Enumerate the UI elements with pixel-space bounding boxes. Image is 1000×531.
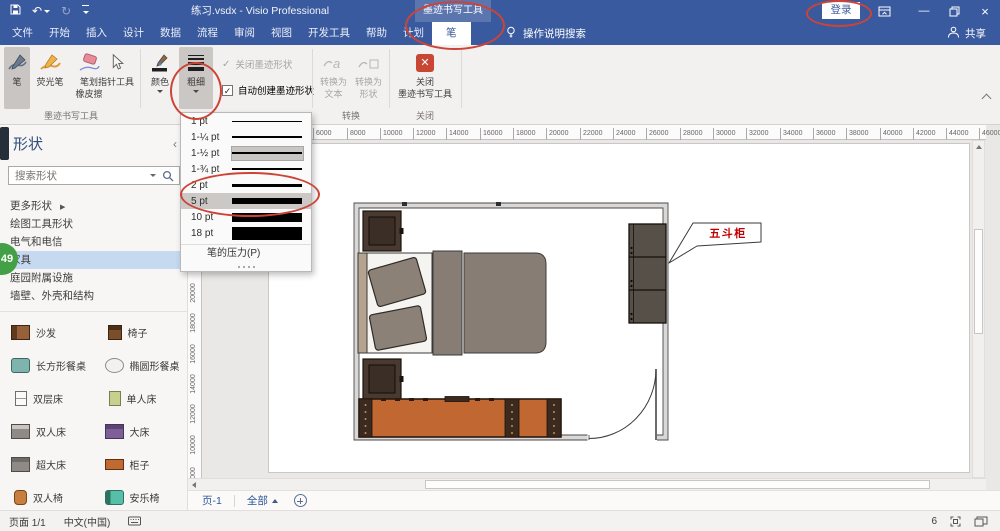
page-count-status[interactable]: 页面 1/1 [9,514,46,529]
ruler-label: 22000 [580,128,602,140]
stencil-section-item[interactable]: 庭园附属设施 [0,269,188,287]
stencil-shape[interactable]: 双人床 [0,424,94,439]
stencil-shape[interactable]: 双层床 [0,391,94,406]
signin-button[interactable]: 登录 [822,2,860,19]
restore-icon[interactable] [942,0,966,22]
page-tab-bar: 页-1 全部 [188,490,1000,510]
stencil-shape[interactable]: 大床 [94,424,188,439]
panel-grip[interactable] [0,127,9,160]
stencil-icon [11,424,30,439]
stencil-section-item[interactable]: 墙壁、外壳和结构 [0,287,188,305]
convert-to-shape-button: 转换为 形状 [352,47,385,109]
ribbon-tab[interactable]: 开始 [41,22,78,45]
pointer-icon [106,51,126,75]
ribbon-tab[interactable]: 流程 [189,22,226,45]
scroll-up-icon[interactable] [976,145,982,149]
highlighter-button[interactable]: 荧光笔 [31,47,69,109]
ruler-label: 6000 [313,128,332,140]
stencil-section-item[interactable]: 绘图工具形状 [0,215,188,233]
menu-resize-grip[interactable] [181,262,311,271]
stencil-shape[interactable]: 安乐椅 [94,490,188,505]
ruler-label: 12000 [413,128,435,140]
zoom-value: 6 [931,516,937,527]
line-weight-sample [232,121,302,122]
tell-me-search[interactable]: 操作说明搜索 [505,22,586,45]
pen-width-option[interactable]: 18 pt [181,225,311,241]
ruler-label: 14000 [190,367,200,401]
search-dropdown-icon[interactable] [150,174,156,180]
color-brush-icon [150,51,170,75]
shapes-panel-title: 形状 [13,133,43,154]
keyboard-icon[interactable] [128,516,141,526]
stencil-section-item[interactable]: 电气和电信 [0,233,188,251]
pen-pressure-option[interactable]: 笔的压力(P) [181,244,311,262]
stencil-icon [11,358,30,373]
ribbon-tab[interactable]: 视图 [263,22,300,45]
all-pages-button[interactable]: 全部 [247,493,278,508]
ribbon-tab[interactable]: 审阅 [226,22,263,45]
ribbon: 笔 荧光笔 笔划 橡皮擦 指针工具 颜色 [0,45,1000,125]
scroll-left-icon[interactable] [192,482,196,488]
pen-thickness-dropdown: 1 pt 1-¼ pt 1-½ pt 1-¾ pt [180,112,312,272]
shape-search-box [8,166,180,185]
stencil-icon [105,424,124,439]
stencil-shape[interactable]: 双人椅 [0,490,94,505]
shapes-panel: 形状 ‹ 更多形状▶ 绘图工具形状 电气和电信 [0,125,188,510]
ribbon-tab[interactable]: 设计 [115,22,152,45]
stencil-icon [11,457,30,472]
checked-checkbox-icon[interactable]: ✓ [222,85,233,96]
ribbon-tab[interactable]: 帮助 [358,22,395,45]
pen-width-option[interactable]: 1-¾ pt [181,161,311,177]
stencil-shape-list: 沙发 椅子 长方形餐桌 椭圆形餐桌 [0,316,187,510]
drawing-page[interactable]: 五斗柜 [268,143,970,473]
ribbon-tab[interactable]: 开发工具 [300,22,358,45]
stencil-icon [15,391,27,406]
flyout-arrow-icon: ▶ [60,204,65,211]
person-icon [947,26,960,41]
ruler-label: 16000 [190,337,200,371]
pen-width-option[interactable]: 10 pt [181,209,311,225]
ribbon-tab[interactable]: 数据 [152,22,189,45]
stencil-shape[interactable]: 单人床 [94,391,188,406]
ruler-label: 18000 [190,306,200,340]
stencil-icon [109,391,121,406]
pen-button[interactable]: 笔 [4,47,30,109]
line-weight-sample [232,168,302,170]
line-weight-sample [232,136,302,138]
convert-to-shape-icon [357,51,381,75]
auto-create-ink-shape-checkbox[interactable]: ✓ 自动创建墨迹形状 [222,83,314,97]
save-icon[interactable] [10,0,21,22]
thickness-button[interactable]: 粗细 [179,47,213,109]
stencil-sections: 更多形状▶ 绘图工具形状 电气和电信 家具 庭园附属设施 [0,197,188,305]
stencil-shape[interactable]: 长方形餐桌 [0,358,94,373]
chevron-down-icon[interactable] [193,90,199,96]
page-tab[interactable]: 页-1 [202,493,222,508]
pen-width-option[interactable]: 1-¼ pt [181,129,311,145]
close-ink-shape-checkbox: ✓ 关闭墨迹形状 [222,57,292,71]
horizontal-scroll-thumb[interactable] [425,480,930,489]
check-icon: ✓ [222,59,230,70]
ruler-label: 46000 [979,128,1000,140]
add-page-icon[interactable] [294,494,307,507]
ribbon-tab[interactable]: 笔 [432,22,471,45]
visio-window: ↶ ↻ 练习.vsdx - Visio Professional 墨迹书写工具 … [0,0,1000,531]
stencil-icon [105,490,124,505]
ribbon-tab[interactable]: 插入 [78,22,115,45]
minimize-icon[interactable]: — [912,0,936,22]
close-icon[interactable]: × [972,0,998,22]
stencil-section-item[interactable]: 家具 [0,251,188,269]
fit-page-icon[interactable] [950,516,961,527]
ruler-label: 18000 [513,128,535,140]
pasteboard: 五斗柜 [202,140,972,478]
share-button[interactable]: 共享 [947,22,986,45]
ruler-label: 24000 [613,128,635,140]
ruler-label: 42000 [913,128,935,140]
ruler-label: 32000 [746,128,768,140]
stencil-section-item[interactable]: 更多形状▶ [0,197,188,215]
ruler-label: 26000 [646,128,668,140]
pen-width-option[interactable]: 1-½ pt [181,145,311,161]
divider [234,495,235,507]
group-label-close: 关闭 [393,109,457,122]
window-title: 练习.vsdx - Visio Professional [120,0,400,22]
language-status[interactable]: 中文(中国) [64,514,111,529]
chevron-up-icon [272,496,278,503]
contextual-tab-header: 墨迹书写工具 [415,0,491,22]
horizontal-scrollbar[interactable] [188,478,986,490]
vertical-scrollbar[interactable] [972,140,985,478]
ribbon-tab-row: 文件 开始 插入 设计 数据 流程 审阅 视图 开发工具 帮助 计划 [0,22,1000,45]
close-ink-tools-button[interactable]: ✕ 关闭 墨迹书写工具 [393,47,457,109]
svg-text:a: a [333,56,340,71]
highlighter-icon [39,51,61,75]
red-x-icon: ✕ [416,54,434,72]
ribbon-tabs: 文件 开始 插入 设计 数据 流程 审阅 视图 开发工具 帮助 计划 [4,22,471,45]
quick-access-toolbar: ↶ ↻ [10,0,89,22]
undo-icon[interactable]: ↶ [32,0,50,22]
ruler-label: 44000 [946,128,968,140]
pen-width-option[interactable]: 1 pt [181,113,311,129]
search-icon[interactable] [162,170,174,182]
pen-icon [6,51,28,75]
stencil-shape[interactable]: 超大床 [0,457,94,472]
qat-customize-icon[interactable] [82,5,89,18]
ribbon-tab[interactable]: 文件 [4,22,41,45]
convert-to-text-button: a 转换为 文本 [317,47,350,109]
group-label-ink: 墨迹书写工具 [4,109,138,122]
ribbon-tab[interactable]: 计划 [395,22,432,45]
ruler-label: 38000 [846,128,868,140]
lightbulb-icon [505,26,517,42]
stencil-icon [108,325,122,340]
stencil-shape[interactable]: 柜子 [94,457,188,472]
titlebar: ↶ ↻ 练习.vsdx - Visio Professional 墨迹书写工具 … [0,0,1000,22]
color-button[interactable]: 颜色 [144,47,176,109]
ruler-label: 10000 [380,128,402,140]
vertical-scroll-thumb[interactable] [974,229,983,334]
ruler-label: 40000 [880,128,902,140]
stencil-icon [11,325,30,340]
ruler-label: 10000 [190,428,200,462]
undo-dropdown-icon[interactable] [44,10,50,16]
pointer-tool-button[interactable]: 指针工具 [95,47,137,109]
chevron-down-icon [157,90,163,96]
line-weight-sample [232,184,302,187]
floor-plan: 五斗柜 [269,144,971,477]
stencil-shape[interactable]: 椭圆形餐桌 [94,358,188,373]
ruler-label: 34000 [780,128,802,140]
line-weight-sample [232,152,302,155]
stencil-icon [105,358,124,373]
shape-search-input[interactable] [9,170,150,182]
line-weight-sample [232,213,302,222]
collapse-panel-icon[interactable]: ‹ [173,137,177,151]
stencil-shape[interactable]: 椅子 [94,325,188,340]
switch-windows-icon[interactable] [974,516,988,527]
thickness-lines-icon [188,51,204,75]
ruler-label: 12000 [190,397,200,431]
callout-label: 五斗柜 [709,226,747,240]
divider [0,311,187,312]
pen-width-option[interactable]: 5 pt [181,193,311,209]
redo-icon: ↻ [61,0,71,22]
ruler-label: 36000 [813,128,835,140]
ruler-label: 20000 [546,128,568,140]
convert-to-text-icon: a [322,51,346,75]
line-weight-sample [232,198,302,204]
ruler-label: 8000 [347,128,366,140]
ribbon-collapse-icon[interactable] [982,94,992,104]
group-label-convert: 转换 [317,109,385,122]
stencil-icon [105,459,124,470]
ruler-label: 14000 [446,128,468,140]
stencil-icon [14,490,27,505]
stencil-shape[interactable]: 沙发 [0,325,94,340]
ruler-label: 28000 [680,128,702,140]
ruler-label: 30000 [713,128,735,140]
line-weight-sample [232,227,302,240]
ruler-label: 20000 [190,276,200,310]
ruler-label: 16000 [480,128,502,140]
status-bar: 页面 1/1 中文(中国) 6 [0,510,1000,531]
ribbon-display-options-icon[interactable] [872,0,896,22]
pen-width-option[interactable]: 2 pt [181,177,311,193]
